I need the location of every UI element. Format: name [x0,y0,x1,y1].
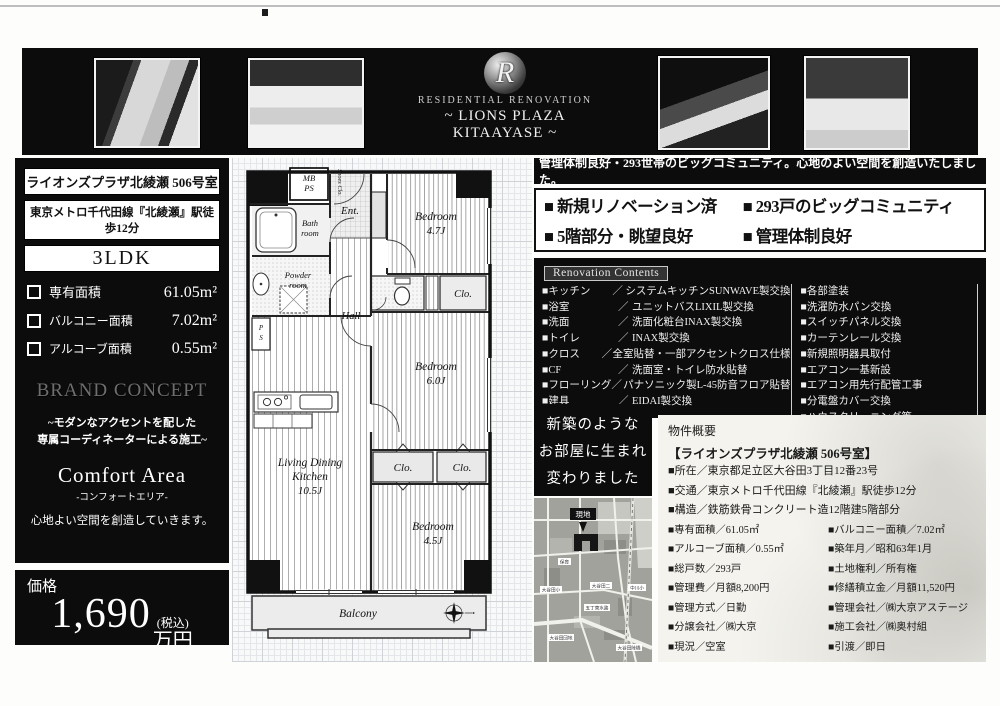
renovation-item: ■エアコン用先行配管工事 [801,378,971,394]
area-label: 専有面積 [49,282,101,301]
room-size-bedroom-b: 6.0J [427,375,447,387]
area-row: 専有面積 61.05m² [27,282,217,302]
room-label-ps2-a: P [258,324,264,332]
renovation-item: ■フローリング／パナソニック製L-45防音フロア貼替 [542,378,791,394]
property-card: ライオンズプラザ北綾瀬 506号室 東京メトロ千代田線『北綾瀬』駅徒歩12分 3… [15,158,229,563]
area-row: アルコーブ面積 0.55m² [27,340,217,358]
logo-line1: RESIDENTIAL RENOVATION [410,95,600,106]
room-label-mb: MB [302,173,315,183]
overview-cell: ■管理費／月額8,200円 [668,579,828,599]
brand-logo: R RESIDENTIAL RENOVATION ~ LIONS PLAZA K… [410,50,600,142]
map-label: 大谷田陸橋 [618,644,641,651]
price-tax-note: (税込) [157,614,189,631]
catch-line-2: お部屋に生まれ [534,439,652,466]
area-map: 現地 保育 大谷田小 大谷田二 中川小 五丁東水路 大谷田団地 大谷田陸橋 [534,498,652,662]
renovation-item: ■浴室／ユニットバスLIXIL製交換 [542,300,791,316]
area-row: バルコニー面積 7.02m² [27,312,217,330]
overview-cell: ■管理会社／㈱大京アステージ [828,599,976,619]
headline-bar: 管理体制良好・293世帯のビッグコミュニティ。心地のよい空間を創造いたしました。 [534,158,986,184]
overview-cell: ■施工会社／㈱奥村組 [828,618,976,638]
room-label-powder-2: room [289,280,307,290]
overview-title: 物件概要 [668,422,976,439]
overview-subtitle: 【ライオンズプラザ北綾瀬 506号室】 [668,443,976,462]
brand-subtitle-2: 専属コーディネーターによる施工~ [15,432,229,449]
renovation-item: ■カーテンレール交換 [801,331,971,347]
area-label: バルコニー面積 [49,312,133,329]
room-label-powder-1: Powder [284,270,312,280]
price-unit: 万円 [153,631,193,651]
room-label-ldk-3: 10.5J [298,485,323,497]
map-label: 中川小 [630,584,644,591]
property-overview: 物件概要 【ライオンズプラザ北綾瀬 506号室】 ■所在／東京都足立区大谷田3丁… [658,415,986,662]
room-label-bath-2: room [301,228,319,238]
overview-cell: ■総戸数／293戸 [668,560,828,580]
scan-artifact-line [0,5,1000,7]
area-value: 7.02m² [172,312,217,330]
room-label-ldk-2: Kitchen [291,471,328,483]
renovation-item: ■CF／洗面室・トイレ防水貼替 [542,363,791,379]
overview-cell: ■引渡／即日 [828,638,976,658]
renovation-item: ■新規照明器具取付 [801,347,971,363]
logo-sphere-icon: R [484,52,526,94]
bathroom-photo [658,56,770,150]
living-dining-photo [94,58,200,148]
map-label: 大谷田二 [592,582,611,589]
overview-cell: ■バルコニー面積／7.02㎡ [828,521,976,541]
room-label-ldk-1: Living Dining [277,457,342,469]
room-label-hall: Hall [341,311,361,322]
overview-cell: ■管理方式／日勤 [668,599,828,619]
renovation-title: Renovation Contents [544,266,668,281]
renovation-item: ■スイッチパネル交換 [801,315,971,331]
room-label-closet-b2: Clo. [453,462,472,474]
catch-line-1: 新築のような [534,412,652,439]
logo-monogram: R [496,56,514,90]
overview-cell: ■専有面積／61.05㎡ [668,521,828,541]
vanity-photo [804,56,910,150]
map-label: 大谷田団地 [550,634,573,641]
map-label: 五丁東水路 [586,604,609,611]
map-label: 大谷田小 [542,586,561,593]
area-label: アルコーブ面積 [49,340,132,357]
renovation-item: ■各部塗装 [801,284,971,300]
room-label-bedroom-a: Bedroom [415,211,457,223]
feature-item: ■ 新規リノベーション済 [544,193,743,217]
map-label: 保育 [560,558,570,565]
overview-cell: ■アルコーブ面積／0.55㎡ [668,540,828,560]
real-estate-flyer: R RESIDENTIAL RENOVATION ~ LIONS PLAZA K… [0,0,1000,706]
renovation-item: ■洗面／洗面化粧台INAX製交換 [542,315,791,331]
property-layout: 3LDK [24,245,220,272]
overview-cell: ■修繕積立金／月額11,520円 [828,579,976,599]
header-band: R RESIDENTIAL RENOVATION ~ LIONS PLAZA K… [22,48,978,155]
room-label-ps2-b: S [259,334,263,342]
renovation-item: ■エアコン一基新設 [801,363,971,379]
feature-item: ■ 5階部分・眺望良好 [544,223,743,247]
checkbox-icon [27,342,41,356]
brand-name-en: Comfort Area [15,463,229,488]
catch-line-3: 変わりました [534,466,652,493]
map-site-label: 現地 [576,509,591,519]
renovation-item: ■クロス／全室貼替・一部アクセントクロス仕様 [542,347,791,363]
brand-subtitle-1: ~モダンなアクセントを配した [15,415,229,432]
room-label-bedroom-b: Bedroom [415,361,457,373]
floor-plan: MB PS Ent. Shoes Clo. Bath room Bedroom … [240,166,522,652]
brand-tagline: 心地よい空間を創造していきます。 [15,512,229,528]
room-size-bedroom-c: 4.5J [424,535,444,547]
brand-concept-title: BRAND CONCEPT [15,380,229,402]
brand-concept-block: BRAND CONCEPT ~モダンなアクセントを配した 専属コーディネーターに… [15,380,229,528]
overview-row: ■所在／東京都足立区大谷田3丁目12番23号 [668,462,976,482]
renovation-item: ■分電盤カバー交換 [801,394,971,410]
overview-cell: ■分譲会社／㈱大京 [668,618,828,638]
overview-cell: ■土地権利／所有権 [828,560,976,580]
renovation-item: ■トイレ／INAX製交換 [542,331,791,347]
overview-row: ■交通／東京メトロ千代田線『北綾瀬』駅徒歩12分 [668,482,976,502]
catch-copy-box: 新築のような お部屋に生まれ 変わりました [534,404,652,496]
room-label-bath-1: Bath [302,218,318,228]
room-label-closet-b1: Clo. [394,462,413,474]
price-amount: 1,690 [51,590,151,638]
room-label-balcony: Balcony [339,608,378,620]
checkbox-icon [27,314,41,328]
feature-item: ■ 管理体制良好 [743,223,976,247]
brand-name-jp: -コンフォートエリア- [15,489,229,503]
room-label-entrance: Ent. [340,205,359,217]
renovation-right-column: ■各部塗装 ■洗濯防水パン交換 ■スイッチパネル交換 ■カーテンレール交換 ■新… [791,284,978,425]
price-box: 価格 1,690 (税込) 万円 [15,570,229,645]
renovation-item: ■キッチン／システムキッチンSUNWAVE製交換 [542,284,791,300]
renovation-item: ■洗濯防水パン交換 [801,300,971,316]
room-label-bedroom-c: Bedroom [412,521,454,533]
room-size-bedroom-a: 4.7J [427,225,447,237]
feature-highlights-box: ■ 新規リノベーション済 ■ 293戸のビッグコミュニティ ■ 5階部分・眺望良… [534,188,986,252]
overview-row: ■構造／鉄筋鉄骨コンクリート造12階建5階部分 [668,501,976,521]
overview-pair-rows: ■専有面積／61.05㎡ ■バルコニー面積／7.02㎡ ■アルコーブ面積／0.5… [668,521,976,658]
overview-cell: ■築年月／昭和63年1月 [828,540,976,560]
area-value: 61.05m² [164,284,217,302]
area-value: 0.55m² [172,340,217,358]
kitchen-photo [248,58,364,148]
room-label-shoes-closet: Shoes Clo. [336,169,343,196]
scan-artifact-speck [262,9,268,16]
room-label-ps: PS [303,183,314,193]
checkbox-icon [27,285,41,299]
headline-bar-text: 管理体制良好・293世帯のビッグコミュニティ。心地のよい空間を創造いたしました。 [539,154,986,188]
feature-item: ■ 293戸のビッグコミュニティ [743,193,976,217]
renovation-contents-box: Renovation Contents ■キッチン／システムキッチンSUNWAV… [534,258,986,418]
overview-cell: ■現況／空室 [668,638,828,658]
logo-line2: ~ LIONS PLAZA KITAAYASE ~ [410,108,600,142]
property-access: 東京メトロ千代田線『北綾瀬』駅徒歩12分 [24,200,220,240]
room-label-closet-top: Clo. [454,289,472,300]
property-name: ライオンズプラザ北綾瀬 506号室 [24,168,220,195]
